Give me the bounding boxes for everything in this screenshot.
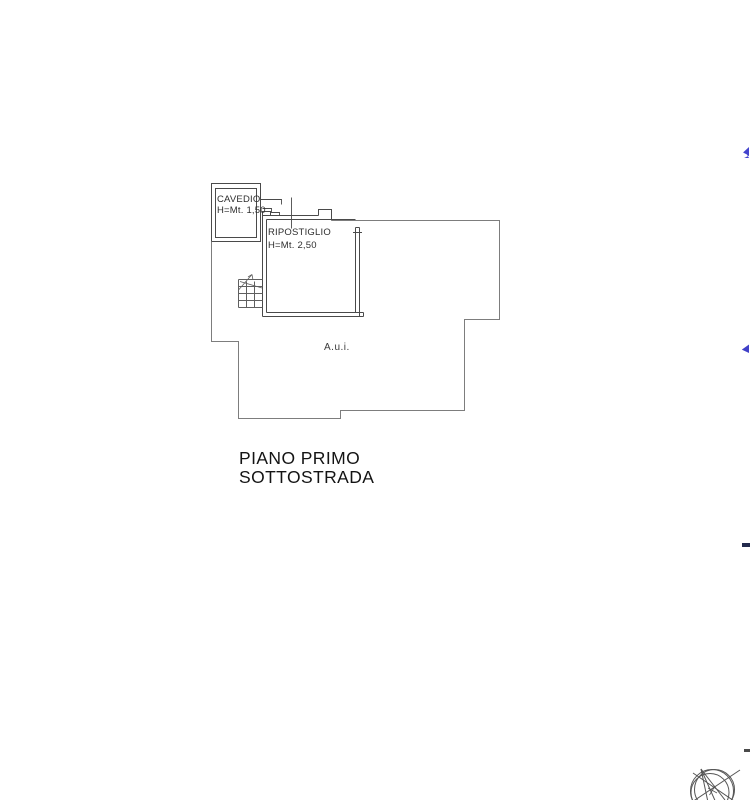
- area-usage-label: A.u.i.: [324, 342, 350, 353]
- floor-title-line2: SOTTOSTRADA: [239, 468, 374, 487]
- floorplan-canvas: CAVEDIO H=Mt. 1,50 RIPOSTIGLIO H=Mt. 2,5…: [0, 0, 750, 800]
- ripostiglio-height-label: H=Mt. 2,50: [268, 240, 331, 253]
- cavedio-height-label: H=Mt. 1,50: [217, 205, 266, 216]
- floor-title: PIANO PRIMO SOTTOSTRADA: [239, 449, 374, 487]
- ripostiglio-room-walls: [263, 210, 364, 317]
- ripostiglio-label: RIPOSTIGLIO: [268, 227, 331, 240]
- cavedio-label-group: CAVEDIO H=Mt. 1,50: [217, 194, 266, 216]
- stairs-icon: [239, 275, 263, 308]
- floor-plan-drawing: [0, 0, 750, 800]
- clipped-edge-mark: [744, 749, 750, 752]
- cavedio-label: CAVEDIO: [217, 194, 266, 205]
- compass-rose-icon: [689, 769, 740, 800]
- clipped-edge-mark: [742, 543, 750, 547]
- floor-title-line1: PIANO PRIMO: [239, 449, 374, 468]
- ripostiglio-label-group: RIPOSTIGLIO H=Mt. 2,50: [268, 227, 331, 252]
